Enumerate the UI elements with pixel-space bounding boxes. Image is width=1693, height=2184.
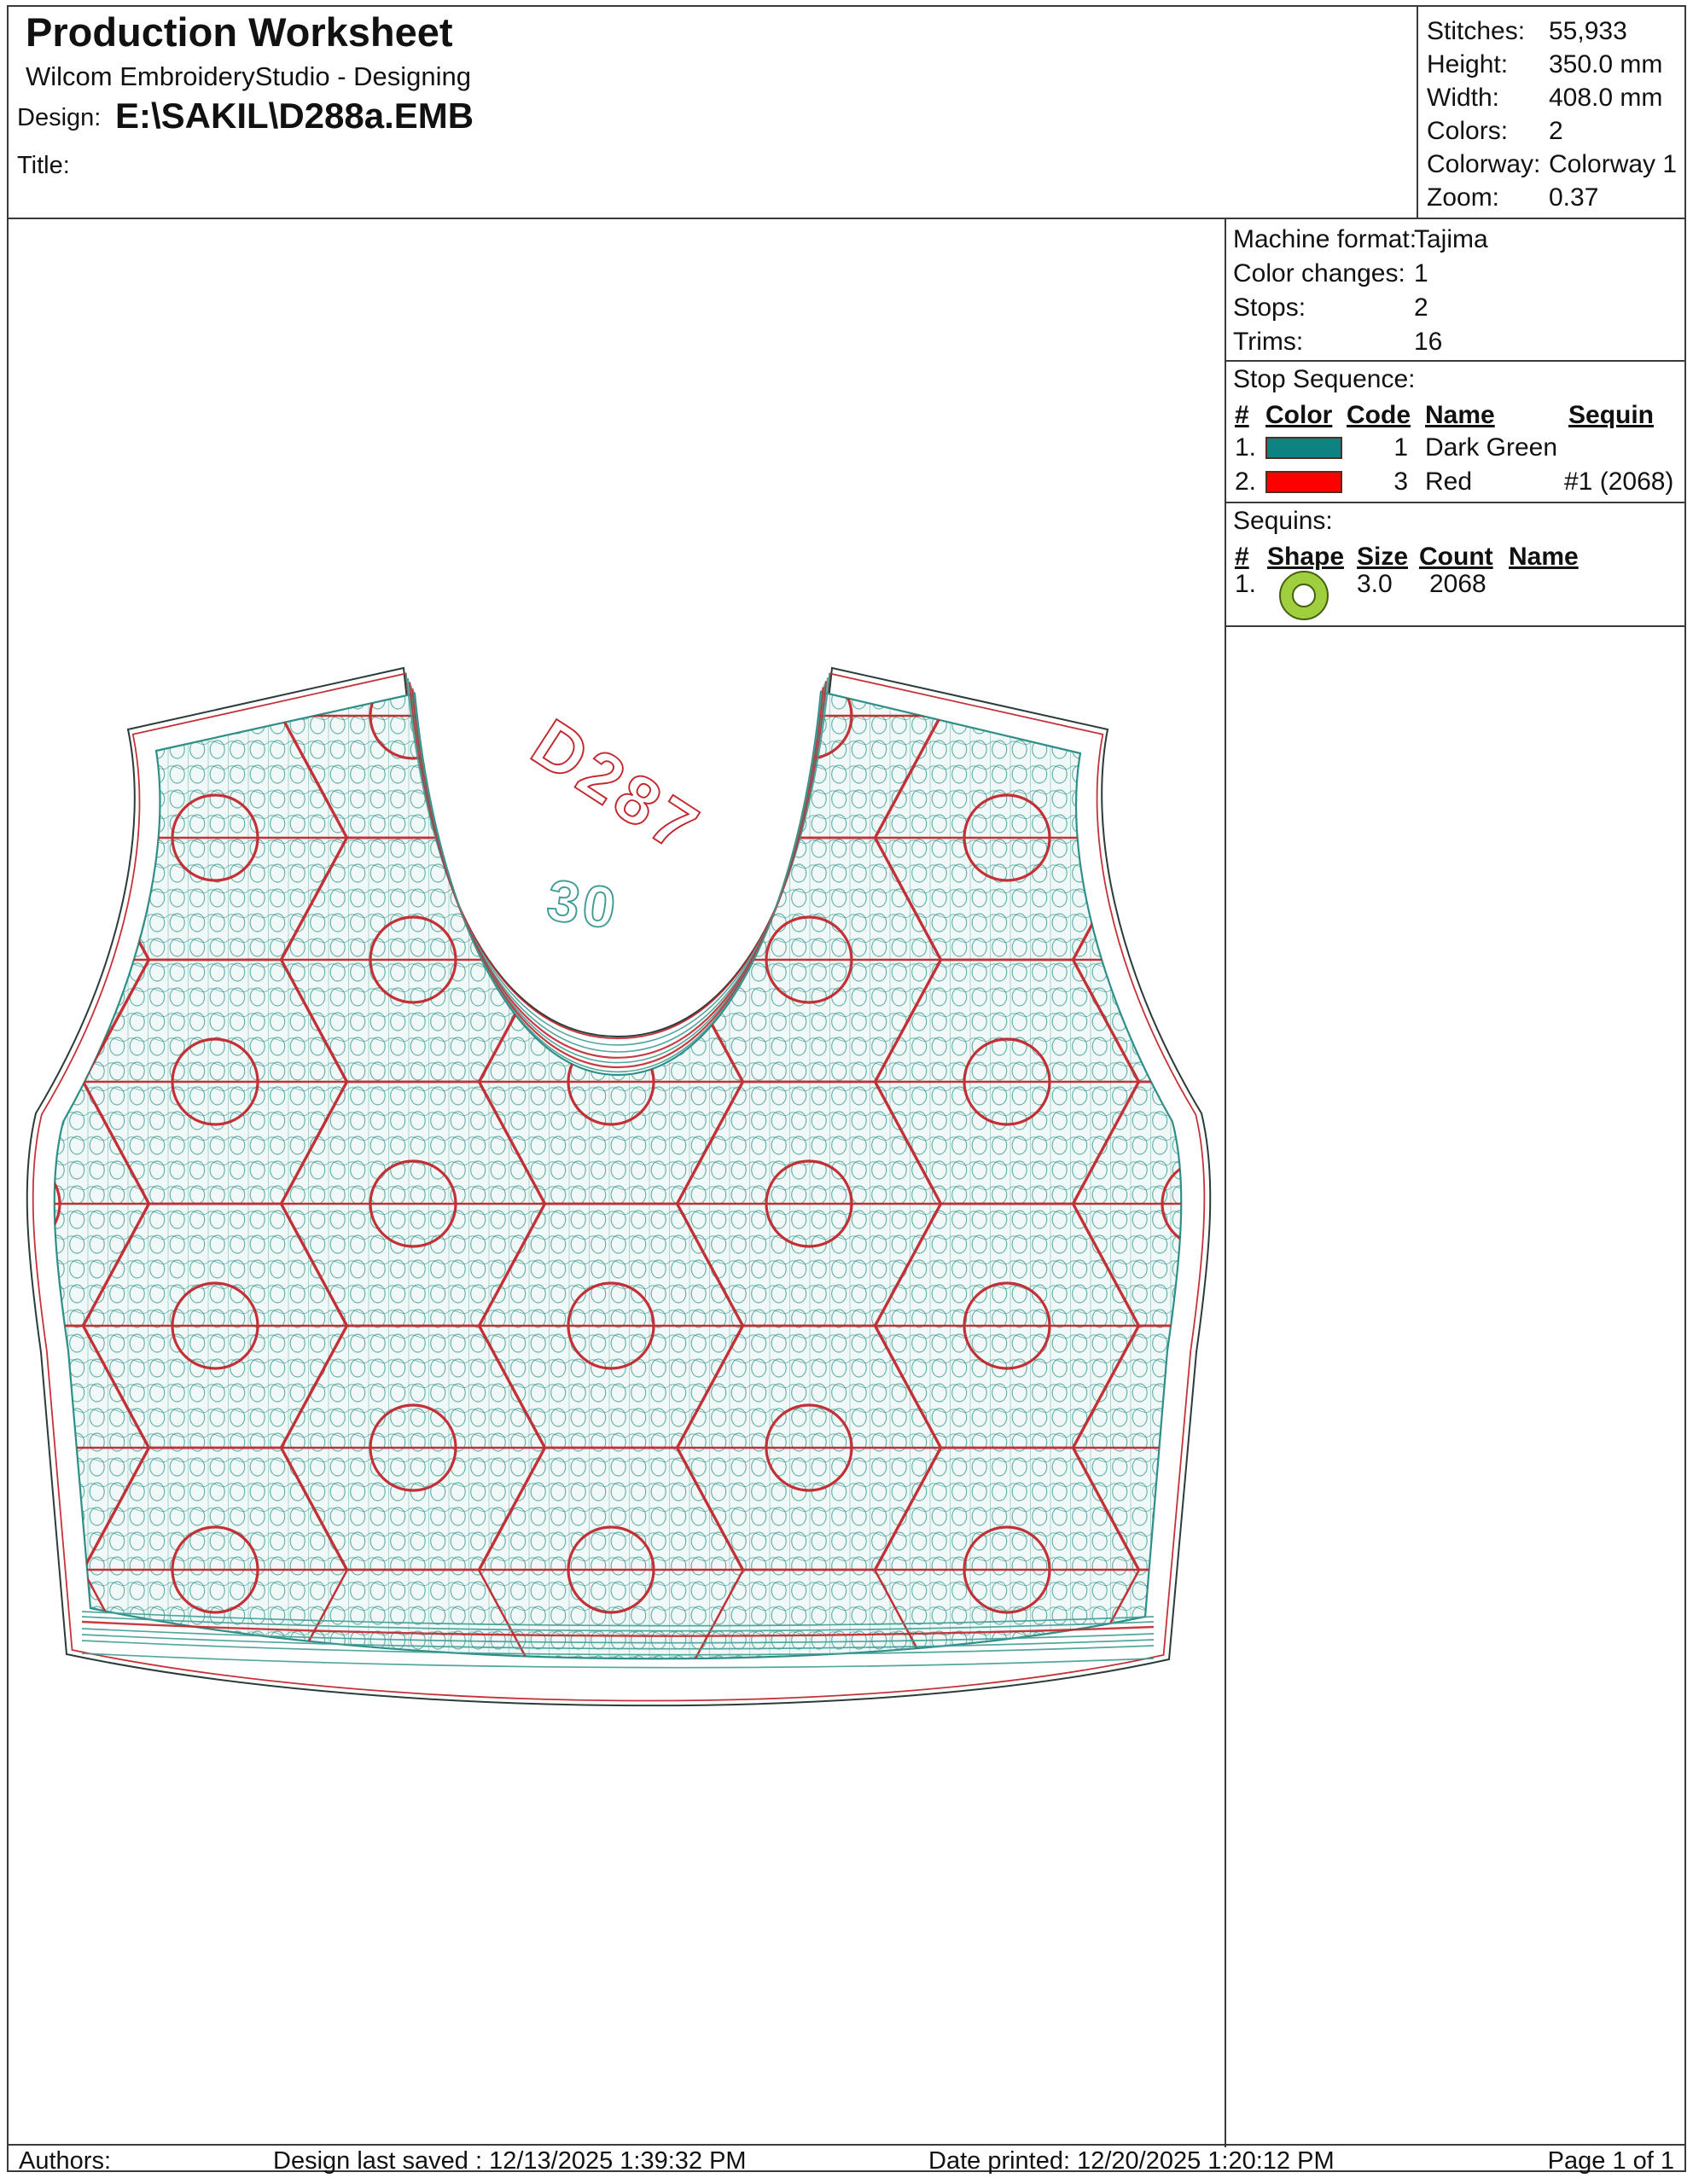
sequin-row-count: 2068 xyxy=(1429,570,1486,599)
stats-value: 55,933 xyxy=(1549,17,1627,46)
stop-row-sequin: #1 (2068) xyxy=(1564,468,1673,497)
machine-label: Machine format: xyxy=(1233,225,1417,254)
stop-sequence-header: Name xyxy=(1425,401,1495,430)
machine-format-rows: Machine format:TajimaColor changes:1Stop… xyxy=(1225,221,1686,357)
stats-label: Width: xyxy=(1427,84,1499,113)
stats-label: Height: xyxy=(1427,50,1508,79)
section-divider xyxy=(1225,502,1686,503)
stop-row-num: 1. xyxy=(1235,433,1256,462)
stats-row: Colors:2 xyxy=(1417,112,1686,145)
section-divider xyxy=(1225,360,1686,362)
title-label: Title: xyxy=(17,152,70,180)
last-saved-text: Design last saved : 12/13/2025 1:39:32 P… xyxy=(273,2147,747,2175)
stop-row-num: 2. xyxy=(1235,468,1256,497)
production-worksheet-page: Production Worksheet Wilcom EmbroiderySt… xyxy=(0,0,1693,2184)
stats-value: 350.0 mm xyxy=(1549,50,1662,79)
section-divider xyxy=(1225,625,1686,627)
stop-sequence-header: Sequin xyxy=(1568,401,1654,430)
machine-info-panel: Machine format:TajimaColor changes:1Stop… xyxy=(1225,218,1686,2144)
stats-value: 2 xyxy=(1549,117,1563,146)
stats-value: 408.0 mm xyxy=(1549,84,1662,113)
sequins-header: Count xyxy=(1419,543,1493,572)
machine-value: Tajima xyxy=(1414,225,1488,254)
machine-label: Stops: xyxy=(1233,293,1306,322)
stats-row: Height:350.0 mm xyxy=(1417,45,1686,78)
stop-row-code: 3 xyxy=(1310,468,1408,497)
sequins-header: Shape xyxy=(1267,543,1344,572)
stop-sequence-header: Code xyxy=(1347,401,1411,430)
donut-sequin-icon xyxy=(1278,570,1329,621)
stop-row-name: Red xyxy=(1425,468,1472,497)
stats-label: Stitches: xyxy=(1427,17,1525,46)
machine-value: 16 xyxy=(1414,328,1442,357)
stats-row: Stitches:55,933 xyxy=(1417,12,1686,45)
machine-value: 2 xyxy=(1414,293,1428,322)
machine-row: Color changes:1 xyxy=(1225,255,1686,289)
design-file-path: E:\SAKIL\D288a.EMB xyxy=(115,96,474,136)
design-stats-box: Stitches:55,933Height:350.0 mmWidth:408.… xyxy=(1417,5,1686,218)
sequin-row-num: 1. xyxy=(1235,570,1256,599)
stop-sequence-title: Stop Sequence: xyxy=(1233,365,1416,394)
stats-row: Colorway:Colorway 1 xyxy=(1417,145,1686,178)
stop-sequence-header: Color xyxy=(1265,401,1332,430)
stats-row: Zoom:0.37 xyxy=(1417,178,1686,212)
design-label: Design: xyxy=(17,104,101,132)
sequins-header: Size xyxy=(1357,543,1408,572)
stats-label: Zoom: xyxy=(1427,183,1499,212)
stop-row-name: Dark Green xyxy=(1425,433,1557,462)
stop-sequence-header: # xyxy=(1235,401,1249,430)
stats-value: Colorway 1 xyxy=(1549,150,1677,179)
date-printed-text: Date printed: 12/20/2025 1:20:12 PM xyxy=(928,2147,1335,2175)
design-size-label: 30 xyxy=(543,868,622,942)
stats-label: Colorway: xyxy=(1427,150,1540,179)
sequins-title: Sequins: xyxy=(1233,507,1333,536)
sequins-header: # xyxy=(1235,543,1249,572)
design-preview: D28730 xyxy=(7,218,1225,2144)
design-code-label: D287 xyxy=(519,705,714,868)
page-number: Page 1 of 1 xyxy=(1548,2147,1674,2175)
machine-value: 1 xyxy=(1414,259,1428,288)
app-subtitle: Wilcom EmbroideryStudio - Designing xyxy=(26,61,471,92)
authors-label: Authors: xyxy=(19,2147,111,2175)
machine-row: Machine format:Tajima xyxy=(1225,221,1686,255)
sequin-row-size: 3.0 xyxy=(1357,570,1393,599)
stats-row: Width:408.0 mm xyxy=(1417,78,1686,112)
machine-row: Stops:2 xyxy=(1225,289,1686,323)
stats-value: 0.37 xyxy=(1549,183,1598,212)
machine-label: Trims: xyxy=(1233,328,1303,357)
page-title: Production Worksheet xyxy=(26,9,453,55)
stop-row-code: 1 xyxy=(1310,433,1408,462)
machine-label: Color changes: xyxy=(1233,259,1405,288)
sequins-header: Name xyxy=(1509,543,1579,572)
footer-top-border xyxy=(7,2144,1686,2146)
machine-row: Trims:16 xyxy=(1225,323,1686,357)
stats-label: Colors: xyxy=(1427,117,1508,146)
